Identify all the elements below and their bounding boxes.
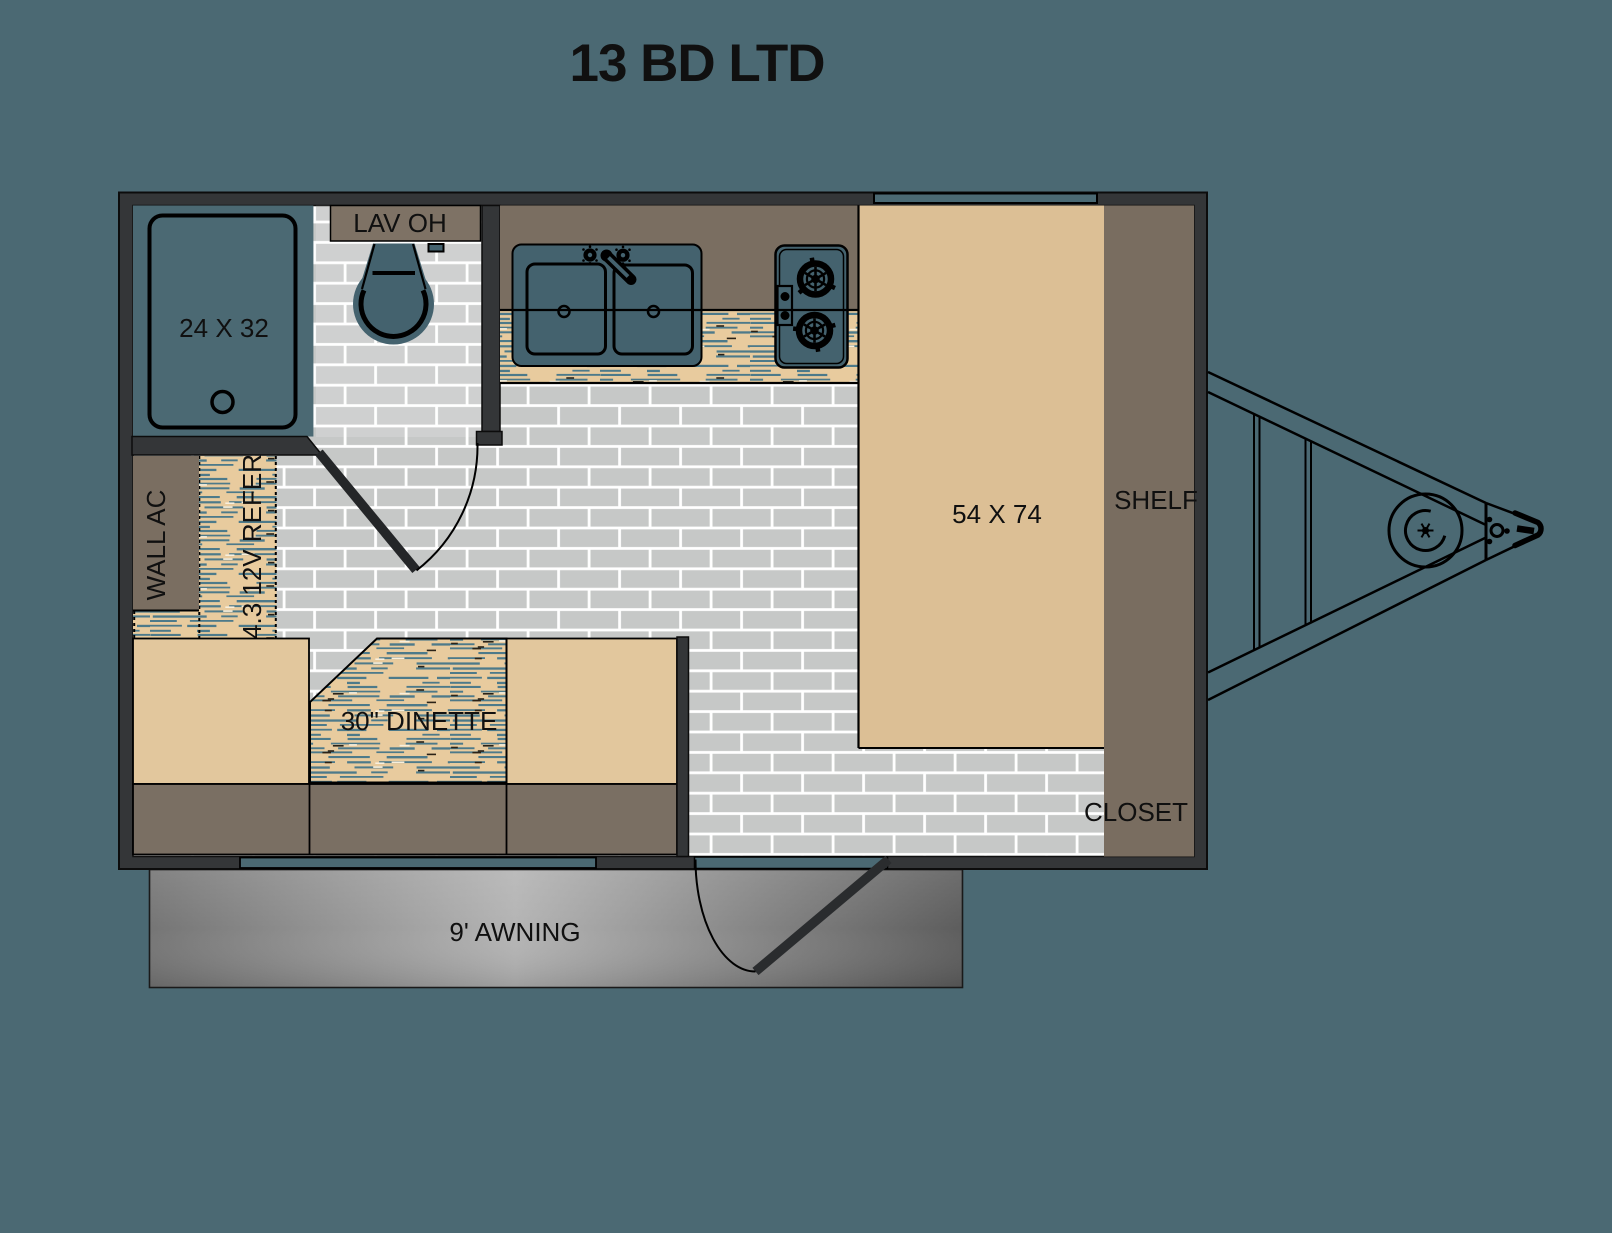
svg-text:13 BD LTD: 13 BD LTD	[569, 34, 824, 93]
svg-text:LAV OH: LAV OH	[353, 208, 446, 238]
svg-text:4.3 12V REFER: 4.3 12V REFER	[237, 454, 267, 639]
svg-text:SHELF: SHELF	[1114, 485, 1198, 515]
svg-text:WALL AC: WALL AC	[141, 490, 171, 601]
svg-text:9' AWNING: 9' AWNING	[449, 917, 580, 947]
svg-text:54 X 74: 54 X 74	[952, 499, 1042, 529]
svg-text:30" DINETTE: 30" DINETTE	[341, 706, 498, 736]
svg-text:24 X 32: 24 X 32	[179, 313, 269, 343]
svg-text:CLOSET: CLOSET	[1084, 797, 1188, 827]
